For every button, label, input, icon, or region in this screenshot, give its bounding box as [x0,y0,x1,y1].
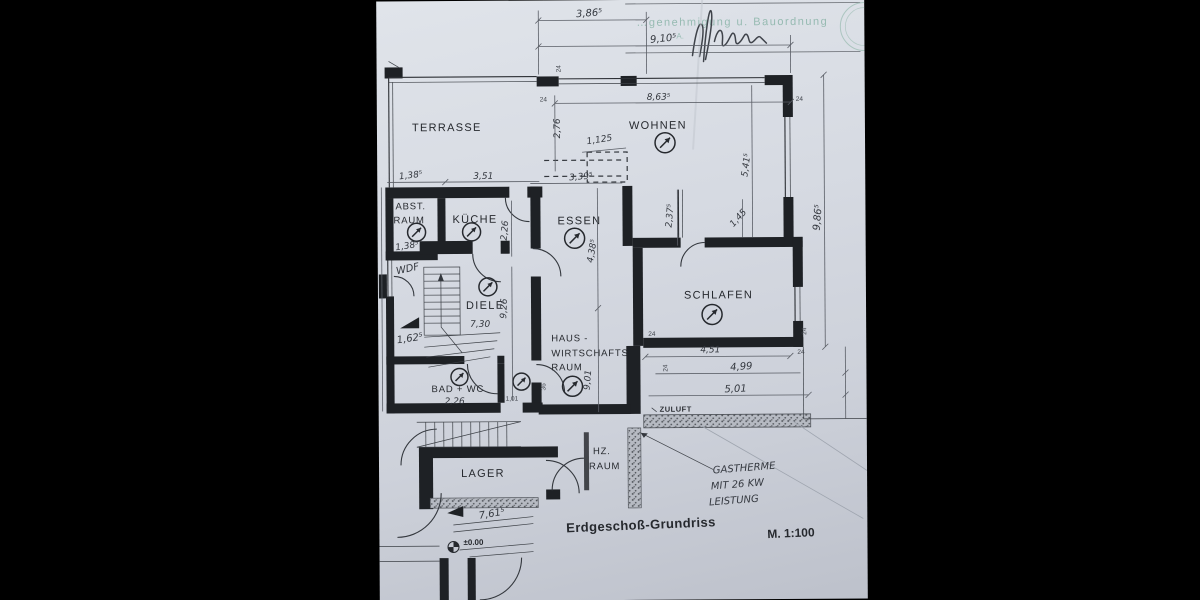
door-exterior-3 [480,558,522,600]
dim-bad-width: 2,26 [445,397,465,407]
room-label-terrasse: TERRASSE [412,122,482,134]
circled-arrow-icon [451,368,468,385]
dim-schlafen-width: 4,51 [700,345,720,355]
dim-1125: 1,125 [586,134,613,148]
level-marker-icon [448,542,459,553]
photo-of-floorplan: …genehmigung u. Bauordnung A. [0,0,1200,600]
dim-nook-depth: 2,37⁵ [665,203,677,228]
dim-24: 24 [662,364,669,372]
dim-nook-pass: 1,45 [728,207,749,229]
zuluft-duct [644,414,811,428]
circled-arrow-icon [702,304,722,324]
leader-arrowhead [641,433,648,438]
stamp-text: …genehmigung u. Bauordnung [636,16,828,29]
dim-entry: 1,62⁵ [396,332,424,347]
circled-arrow-icon [655,133,675,153]
room-label-hwr-2: WIRTSCHAFTS [551,348,628,359]
door-diele-essen [533,248,561,276]
room-label-schlafen: SCHLAFEN [684,289,753,301]
room-label-hwr-1: HAUS - [551,333,588,344]
door-wdf [394,276,414,296]
drawing-scale: M. 1:100 [767,525,815,541]
door-schlafen [681,242,705,266]
room-label-essen: ESSEN [557,215,601,227]
circled-arrow-icon [565,228,585,248]
title-block: Erdgeschoß-Grundriss M. 1:100 [566,514,815,543]
circled-arrow-icon [562,376,582,396]
dim-bad-niche: 36 [541,383,548,391]
door-hz [552,458,584,490]
dim-24: 24 [648,331,656,338]
entrance-triangle-marker [400,317,419,328]
dim-window-276: 2,76 [553,118,563,138]
gastherme-note-2: MIT 26 KW [711,477,766,492]
room-label-hz-1: HZ. [593,446,611,457]
level-label: ±0.00 [463,538,484,547]
interior-staircase [424,267,501,367]
gastherme-note-1: GASTHERME [712,461,776,477]
dim-24: 24 [797,349,805,356]
stamp-seal-icon [840,2,868,50]
room-label-wohnen: WOHNEN [629,120,687,132]
room-label-hwr-3: RAUM [551,362,582,373]
dim-wohnen-width: 8,63⁵ [647,93,671,103]
dim-diele-note: 7,30 [470,320,490,330]
room-label-hz-2: RAUM [589,461,620,472]
dim-24: 24 [796,96,804,103]
zuluft-label: ZULUFT [660,405,692,414]
drawing-title: Erdgeschoß-Grundriss [566,514,716,535]
gastherme-note-3: LEISTUNG [709,494,760,509]
room-label-abst-1: ABST. [395,201,425,212]
dim-24-top: 24 [556,65,563,73]
dim-hall-depth: 9,26 [499,298,510,319]
wdf-label: WDF [395,262,420,278]
circled-arrow-icon [479,278,497,296]
exterior-stairs [417,422,521,448]
dim-south-inner: 4,99 [730,361,753,373]
dim-910: 9,10⁵ [650,32,677,45]
dim-wohnen-depth: 5,41⁵ [740,152,753,177]
dim-south-depth: 9,01 [583,370,595,391]
dim-24: 24 [540,96,548,103]
dim-24: 24 [801,327,808,335]
door-lager [546,460,579,493]
circled-arrow-icon [513,373,530,390]
dim-kueche-width: 3,51 [473,172,493,182]
dim-south-outer: 5,01 [724,383,747,395]
dim-kueche-depth: 2,26 [500,220,512,241]
stamp-initials: A. [676,32,684,41]
door-arcs [393,196,706,600]
roof-hatch-marker [385,67,403,78]
floorplan-sheet: …genehmigung u. Bauordnung A. [376,0,868,600]
dim-essen-width: 3,39⁵ [569,172,594,184]
dim-bad-door: 1,01 [506,396,519,403]
floorplan-drawing: …genehmigung u. Bauordnung A. [376,0,868,600]
door-terrace-kueche [505,198,529,222]
dim-abst-width: 1,38⁵ [398,170,423,183]
room-label-lager: LAGER [461,468,505,480]
dim-right-overall: 9,86⁵ [812,204,825,231]
dim-386: 3,86⁵ [576,7,603,20]
